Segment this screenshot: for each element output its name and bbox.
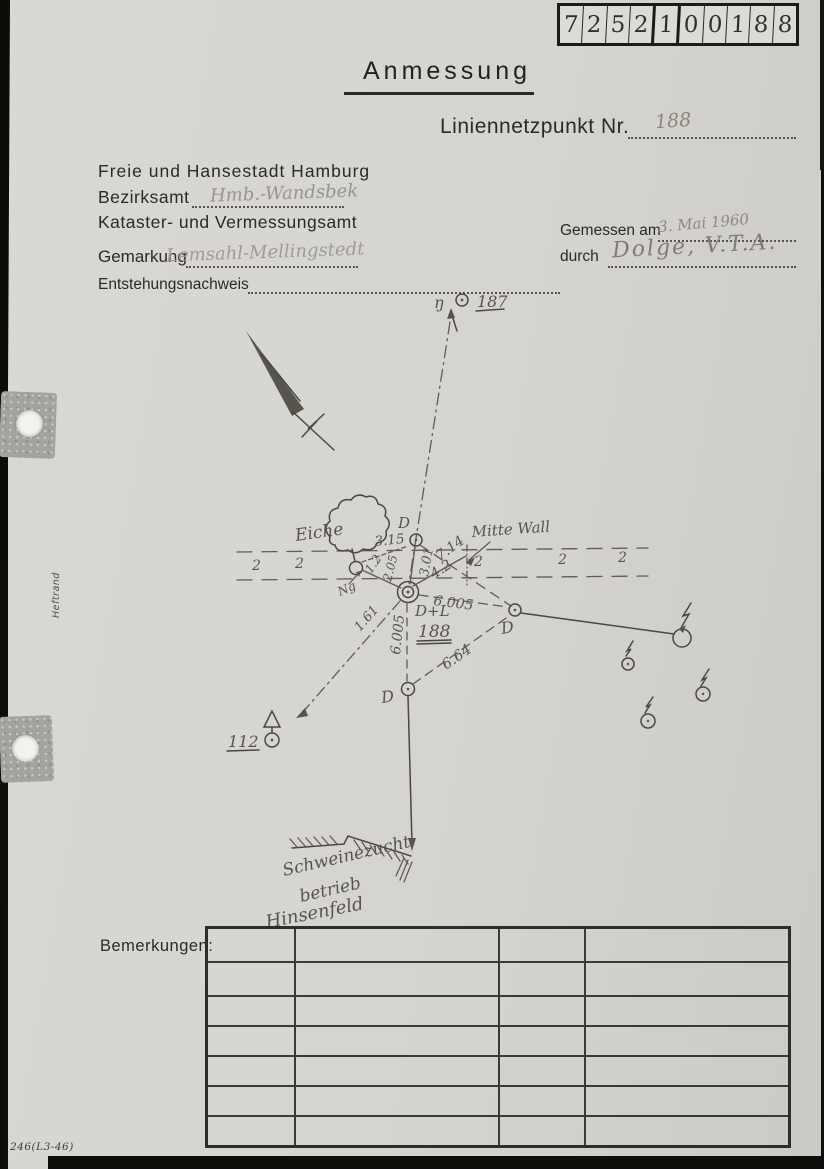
table-row [208,1117,788,1145]
pole-symbol [673,603,691,647]
wall-symbol: 2 [251,558,261,574]
table-row [208,1027,788,1057]
point-187-dot [461,299,464,302]
wall-symbol: 2 [473,554,483,570]
underline [417,643,451,644]
underline [417,640,451,641]
scanned-survey-form: 100 7 2 5 2 1 0 0 1 8 8 Anmessung Linien… [0,0,824,1169]
measure-d1-d2: 7.14 [433,533,468,564]
line-d3-farm [408,696,412,844]
arrowhead [447,308,455,319]
point-187-prefix: ŋ [434,293,444,312]
remarks-label: Bemerkungen: [100,937,213,956]
table-row [208,1057,788,1087]
point-112-symbol [264,711,280,747]
measure-sw: 1.61 [352,603,382,635]
form-code: 246(L3-46) [10,1141,74,1153]
arrowhead [296,708,308,718]
point-d3-label: D [379,686,396,707]
point-d2-label: D [498,617,515,638]
table-row [208,997,788,1027]
tree-label: Eiche [293,519,345,546]
point-d1-label: D [397,514,410,532]
point-d3-dot [407,688,410,691]
pole-symbol [696,669,710,701]
point-188-number: 188 [418,622,451,642]
ng-label: Ng [335,578,359,599]
table-row [208,963,788,997]
wall-symbol: 2 [617,550,627,566]
wall-symbol: 2 [557,552,567,568]
measure-d3-d2: 6.64 [439,642,475,674]
wall-symbol: 2 [294,556,304,572]
point-188-dot [407,591,410,594]
remarks-table [205,926,791,1148]
north-arrow [246,331,334,450]
pole-symbol [641,697,655,728]
wall-label: Mitte Wall [470,518,551,542]
point-d1-dot [415,539,418,542]
underline [227,750,259,751]
point-187-number: 187 [477,292,508,311]
measure-tree-d: 3.15 [374,531,406,550]
point-d2-dot [514,609,517,612]
table-row [208,1087,788,1117]
measure-188-d3: 6.005 [388,614,408,656]
measure-short-b: 2.05 [380,553,400,583]
pole-symbol [622,641,634,670]
point-112-number: 112 [228,732,259,751]
table-row [208,929,788,963]
line-d2-pole [521,613,674,634]
